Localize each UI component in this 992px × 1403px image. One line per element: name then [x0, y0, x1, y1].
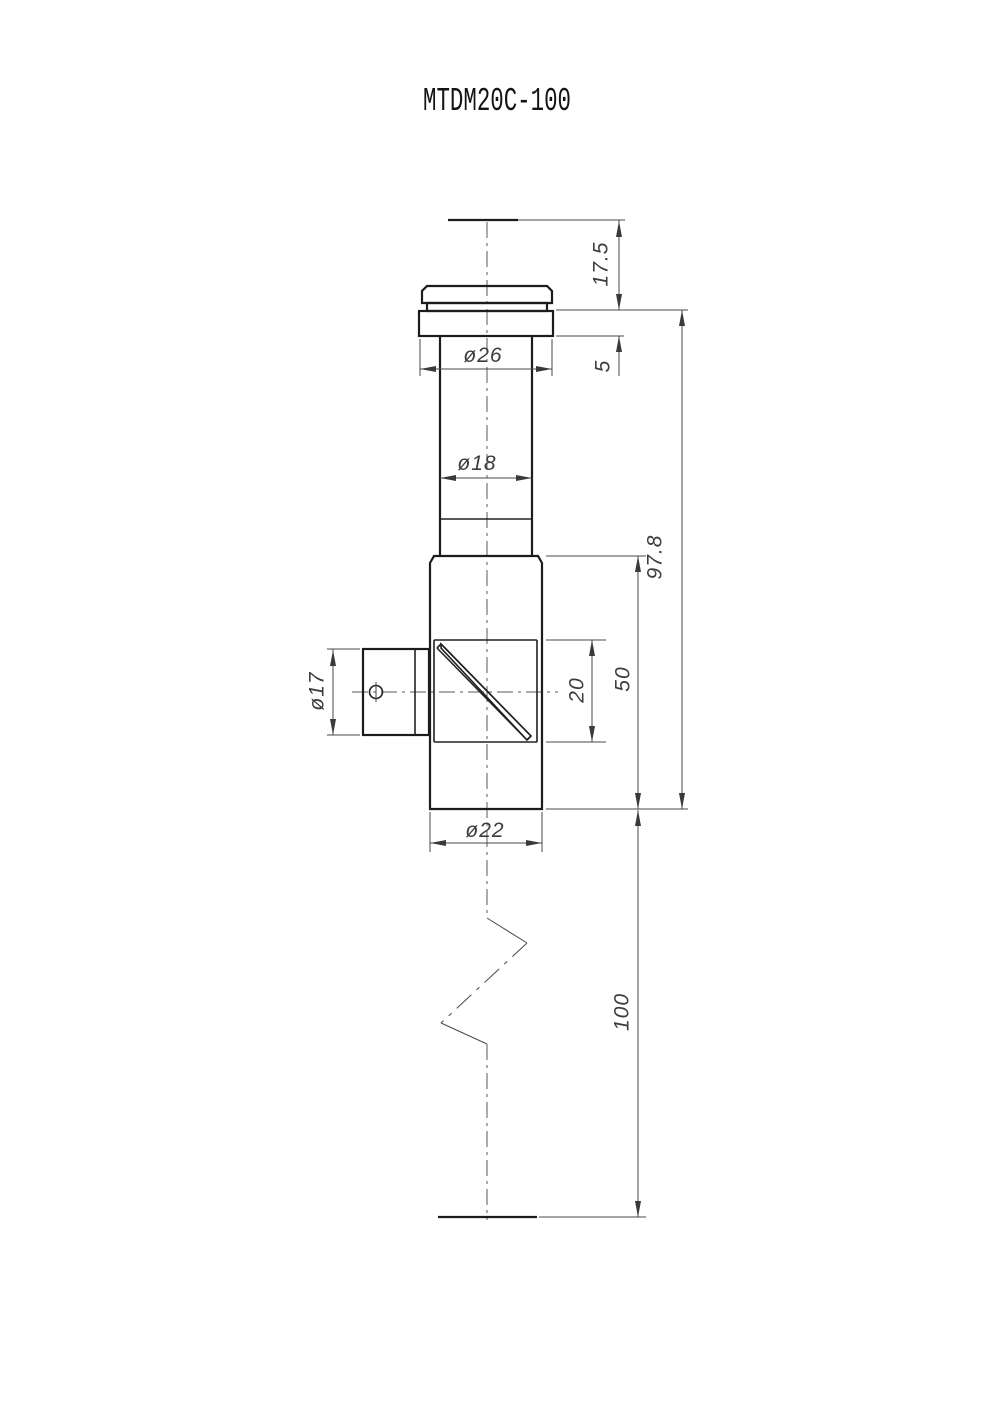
- arrow-d17-top: [330, 650, 336, 666]
- drawing-sheet: MTDM20C-100: [0, 0, 992, 1403]
- break-segment-1: [487, 918, 527, 943]
- main-body: [430, 556, 542, 809]
- arrow-100-bottom: [635, 1201, 641, 1217]
- mirror-diagonal-back: [437, 648, 527, 740]
- mirror-end-cap-bottom: [527, 736, 531, 740]
- mirror-diagonal-front: [441, 644, 531, 736]
- arrow-5-bottom: [616, 336, 622, 352]
- drawing-canvas: MTDM20C-100: [0, 0, 992, 1403]
- arrow-20-bottom: [589, 726, 595, 742]
- dim-label-flange-to-bottom: 97.8: [644, 535, 667, 580]
- dim-label-body-length: 50: [612, 666, 635, 691]
- dimension-labels: 17.5 5 97.8 ø26 ø18 20 50 ø17 ø22 100: [306, 242, 667, 1031]
- dim-label-flange-thickness: 5: [592, 360, 615, 373]
- dim-label-tube-diameter: ø18: [457, 452, 496, 475]
- arrow-20-top: [589, 640, 595, 656]
- arrow-d17-bottom: [330, 719, 336, 735]
- arrow-d22-left: [430, 840, 446, 846]
- dim-label-lower-extension: 100: [611, 993, 634, 1031]
- dim-label-port-diameter: ø17: [306, 671, 329, 711]
- arrow-d26-left: [420, 366, 436, 372]
- arrow-17-5-bottom: [616, 294, 622, 310]
- arrow-50-bottom: [635, 793, 641, 809]
- arrow-d18-right: [516, 475, 532, 481]
- dim-label-flange-diameter: ø26: [463, 344, 502, 367]
- arrow-97-8-bottom: [679, 793, 685, 809]
- dim-label-top-offset: 17.5: [590, 242, 613, 287]
- part-outline: [363, 220, 553, 1217]
- arrow-d26-right: [536, 366, 552, 372]
- arrow-d18-left: [440, 475, 456, 481]
- flange-disc: [419, 311, 553, 336]
- break-segment-2: [441, 943, 527, 1023]
- break-symbol: [441, 918, 527, 1044]
- break-segment-3: [441, 1023, 487, 1044]
- arrow-d22-right: [526, 840, 542, 846]
- arrow-50-top: [635, 556, 641, 572]
- centerlines: [352, 222, 558, 1220]
- prism-section: [434, 640, 537, 742]
- arrow-97-8-top: [679, 310, 685, 326]
- arrow-17-5-top: [616, 221, 622, 237]
- dim-label-body-diameter: ø22: [465, 819, 504, 842]
- part-number-title: MTDM20C-100: [423, 83, 571, 120]
- arrow-100-top: [635, 810, 641, 826]
- dim-label-prism-section: 20: [566, 677, 589, 703]
